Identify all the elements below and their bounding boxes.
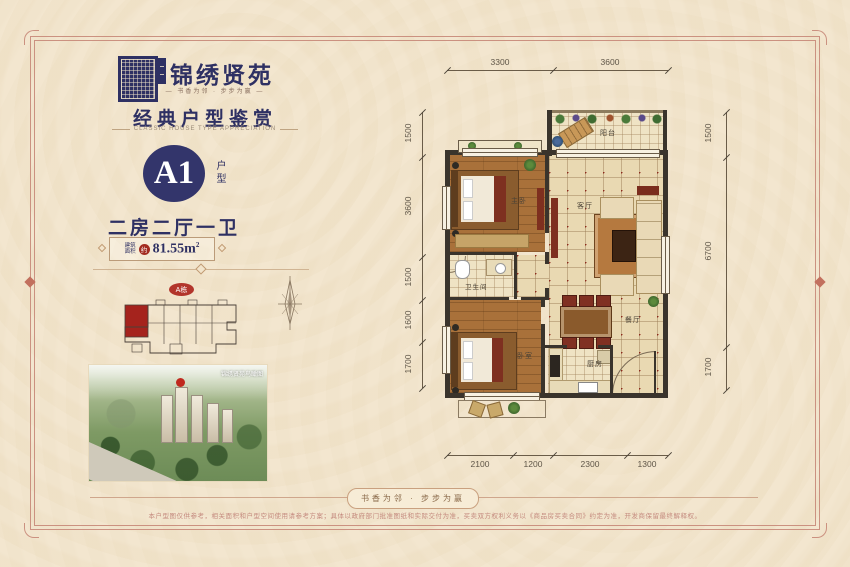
footer-disclaimer: 本户型图仅供参考，相关面积和户型空间使用请参考方案；具体以政府部门批准图纸和实际… bbox=[125, 510, 725, 520]
photo-building bbox=[207, 403, 219, 443]
room-label-kitchen: 厨房 bbox=[587, 359, 603, 369]
photo-building bbox=[222, 409, 233, 443]
nightstand bbox=[452, 162, 459, 169]
dim-label: 1500 bbox=[403, 111, 413, 155]
dim-label: 3600 bbox=[580, 57, 640, 67]
entry-door-leaf bbox=[654, 351, 656, 394]
master-rug bbox=[455, 234, 529, 248]
master-tv-cabinet bbox=[537, 188, 544, 230]
brand-name: 锦绣贤苑 bbox=[170, 56, 280, 90]
dim-label: 6700 bbox=[703, 229, 713, 273]
wall-segment bbox=[545, 345, 567, 348]
room-label-master: 主卧 bbox=[511, 196, 527, 206]
master-bed bbox=[451, 170, 519, 230]
dining-chair bbox=[562, 295, 577, 307]
building-badge: A栋 bbox=[169, 283, 194, 296]
photo-building bbox=[191, 395, 203, 443]
aerial-photo: 锦绣贤苑鸟瞰图 bbox=[88, 364, 268, 482]
dim-line-top bbox=[447, 70, 668, 71]
corner-ornament-icon bbox=[24, 30, 39, 45]
photo-building bbox=[175, 387, 188, 443]
sink-basin bbox=[495, 263, 506, 274]
corner-ornament-icon bbox=[24, 523, 39, 538]
wall-segment bbox=[445, 252, 517, 255]
wall-segment bbox=[445, 297, 509, 300]
flyer-page: 锦绣贤苑 — 书香为邻 · 步步为赢 — 经典户型鉴赏 CLASSIC HOUS… bbox=[0, 0, 850, 567]
window bbox=[442, 326, 451, 374]
brand-seal-icon bbox=[118, 56, 158, 102]
wall-segment bbox=[514, 252, 517, 299]
corner-ornament-icon bbox=[812, 523, 827, 538]
toilet bbox=[455, 260, 470, 279]
section-subtitle: CLASSIC HOUSE TYPE APPRECIATION bbox=[134, 126, 276, 132]
room-label-balcony: 阳台 bbox=[600, 128, 616, 138]
room-label-bedroom2: 卧室 bbox=[517, 351, 533, 361]
photo-building bbox=[161, 395, 173, 443]
dim-label: 2300 bbox=[560, 459, 620, 469]
dim-label: 1700 bbox=[403, 342, 413, 386]
wall-segment bbox=[610, 348, 613, 394]
bed-pillow bbox=[463, 179, 473, 198]
tv-stand bbox=[551, 198, 558, 258]
bed-runner bbox=[492, 338, 503, 382]
dining-chair bbox=[596, 295, 611, 307]
nightstand bbox=[452, 324, 459, 331]
bed-headboard bbox=[452, 171, 458, 227]
siteplan-footprint bbox=[118, 296, 244, 362]
dim-label: 3600 bbox=[403, 184, 413, 228]
unit-code-label: 户型 bbox=[212, 160, 227, 186]
corner-ornament-icon bbox=[812, 30, 827, 45]
unit-code-badge: A1 bbox=[143, 145, 205, 202]
area-value: 81.55m2 bbox=[153, 241, 200, 258]
wall-segment bbox=[545, 153, 549, 233]
dim-label: 1500 bbox=[403, 255, 413, 299]
dim-line-bottom bbox=[447, 455, 668, 456]
bed-pillow bbox=[463, 341, 473, 359]
dining-table bbox=[560, 306, 612, 338]
bedroom2-bed bbox=[451, 332, 517, 390]
area-approx-badge: 约 bbox=[139, 244, 150, 255]
photo-caption: 锦绣贤苑鸟瞰图 bbox=[221, 369, 263, 378]
window bbox=[462, 148, 538, 157]
bed-headboard bbox=[452, 333, 458, 387]
plant-icon bbox=[648, 296, 659, 307]
plant-icon bbox=[552, 136, 563, 147]
dining-chair bbox=[579, 295, 594, 307]
plant-icon bbox=[524, 159, 536, 171]
brand-tagline: — 书香为邻 · 步步为赢 — bbox=[140, 86, 290, 95]
window bbox=[442, 186, 451, 230]
coffee-table bbox=[612, 230, 636, 262]
compass-icon bbox=[274, 274, 306, 332]
dim-label: 1600 bbox=[403, 298, 413, 342]
room-label-bathroom: 卫生间 bbox=[465, 281, 488, 291]
bed-pillow bbox=[463, 362, 473, 380]
plant-icon bbox=[508, 402, 520, 414]
bed-runner bbox=[494, 176, 506, 222]
unit-layout: 二房二厅一卫 bbox=[103, 213, 245, 240]
footer-banner: 书香为邻 · 步步为赢 bbox=[347, 488, 479, 509]
sofa-chair-bottom bbox=[600, 274, 634, 296]
stove bbox=[550, 355, 560, 377]
dim-label: 1700 bbox=[703, 345, 713, 389]
dim-label: 2100 bbox=[450, 459, 510, 469]
dim-label: 1200 bbox=[503, 459, 563, 469]
sideboard bbox=[637, 186, 659, 195]
window bbox=[661, 236, 670, 294]
brand-side-seal-icon bbox=[158, 58, 166, 84]
area-box: 建筑面积 约 81.55m2 bbox=[109, 237, 215, 261]
dim-label: 1300 bbox=[617, 459, 677, 469]
dining-chair bbox=[579, 337, 594, 349]
balcony-slider-window bbox=[556, 149, 660, 158]
balcony-plants bbox=[552, 111, 664, 126]
photo-marker-icon bbox=[176, 378, 185, 387]
sofa-main bbox=[636, 200, 662, 294]
wall-segment bbox=[549, 110, 667, 113]
dim-label: 3300 bbox=[470, 57, 530, 67]
dim-label: 1500 bbox=[703, 111, 713, 155]
room-label-dining: 餐厅 bbox=[625, 315, 641, 325]
kitchen-sink bbox=[578, 382, 598, 393]
wall-segment bbox=[545, 288, 549, 300]
wall-segment bbox=[545, 252, 549, 264]
sofa-chair-top bbox=[600, 197, 634, 219]
area-label: 建筑面积 bbox=[125, 243, 136, 255]
bathroom-vanity bbox=[486, 259, 512, 276]
bed-pillow bbox=[463, 201, 473, 220]
wall-segment bbox=[541, 300, 545, 307]
wall-segment bbox=[541, 324, 545, 394]
dim-line-left bbox=[422, 112, 423, 388]
room-label-living: 客厅 bbox=[577, 201, 593, 211]
